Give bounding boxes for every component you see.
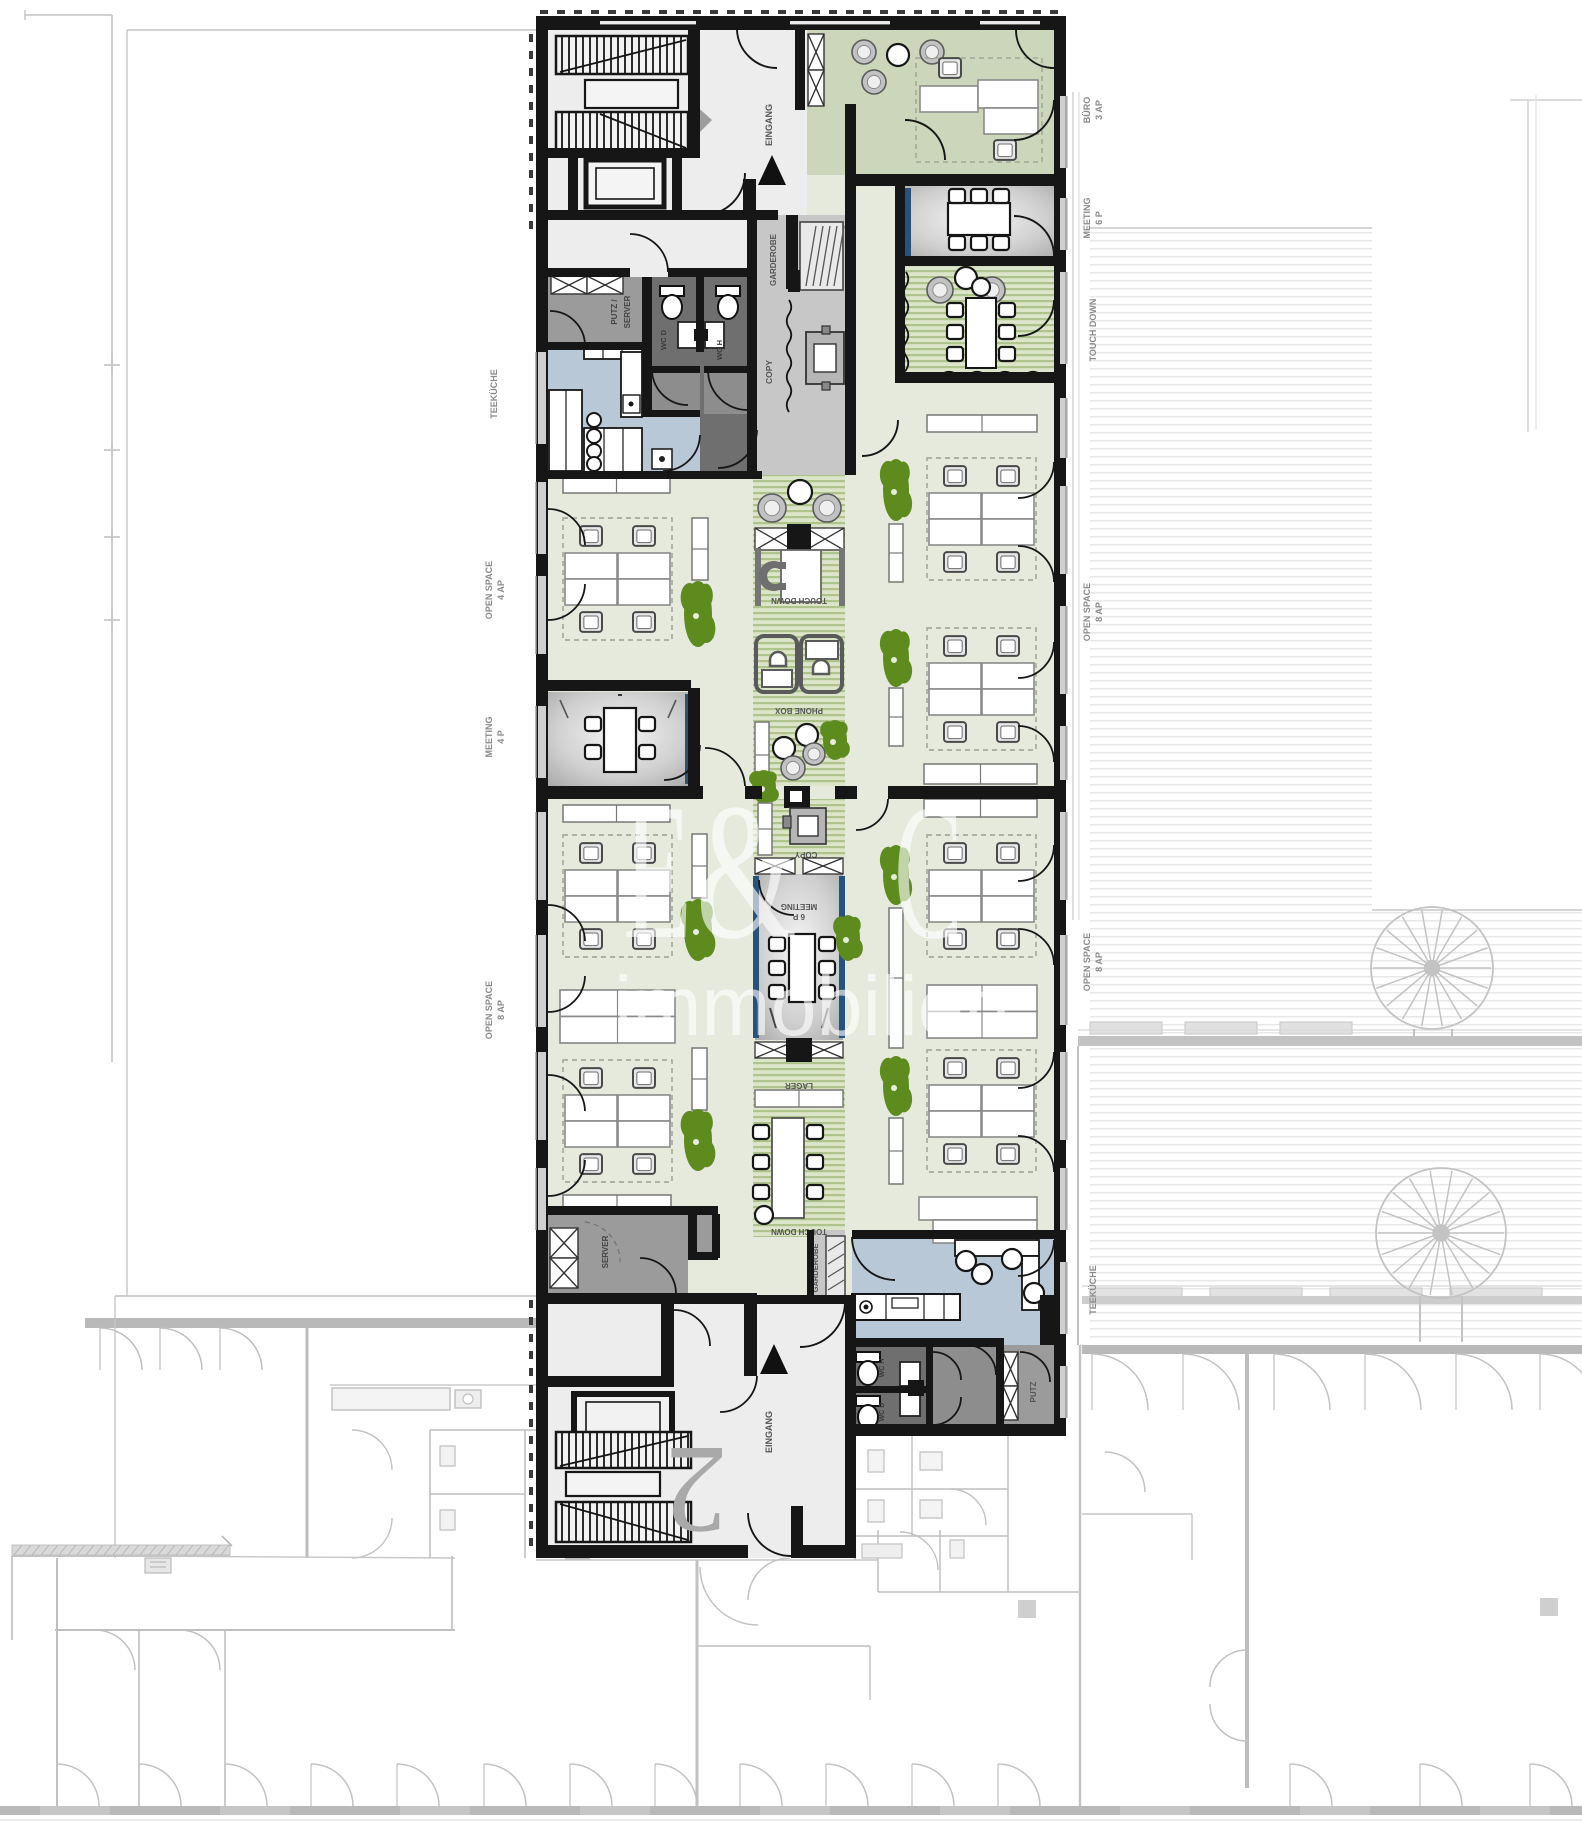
svg-text:TOUCH DOWN: TOUCH DOWN <box>771 1227 827 1236</box>
svg-text:EINGANG: EINGANG <box>764 1411 774 1453</box>
svg-text:OPEN SPACE: OPEN SPACE <box>484 561 494 619</box>
svg-text:8 AP: 8 AP <box>1094 602 1104 622</box>
svg-text:TOUCH DOWN: TOUCH DOWN <box>1088 299 1098 362</box>
svg-text:MEETING: MEETING <box>484 716 494 757</box>
svg-text:&: & <box>696 764 797 980</box>
svg-text:4 P: 4 P <box>496 730 506 744</box>
svg-text:6 P: 6 P <box>1094 211 1104 225</box>
svg-text:4 AP: 4 AP <box>496 580 506 600</box>
svg-text:TEEKÜCHE: TEEKÜCHE <box>1088 1265 1098 1315</box>
svg-text:TOUCH DOWN: TOUCH DOWN <box>771 596 827 605</box>
svg-text:3 AP: 3 AP <box>1094 100 1104 120</box>
svg-text:PUTZ /: PUTZ / <box>610 299 619 325</box>
svg-text:COPY: COPY <box>764 360 774 384</box>
svg-text:C: C <box>894 764 963 980</box>
svg-text:WC H: WC H <box>715 340 724 360</box>
svg-text:WC D: WC D <box>879 1403 886 1422</box>
svg-text:WC D: WC D <box>659 329 668 350</box>
svg-text:MEETING: MEETING <box>1082 197 1092 238</box>
svg-text:8 AP: 8 AP <box>496 1000 506 1020</box>
svg-text:EINGANG: EINGANG <box>764 104 774 146</box>
svg-text:SERVER: SERVER <box>601 1235 610 1268</box>
svg-text:TEEKÜCHE: TEEKÜCHE <box>489 369 499 419</box>
svg-text:OPEN SPACE: OPEN SPACE <box>484 981 494 1039</box>
svg-text:2: 2 <box>665 1420 728 1559</box>
svg-text:PHONE BOX: PHONE BOX <box>774 706 823 715</box>
svg-text:E: E <box>623 764 692 980</box>
svg-text:8 AP: 8 AP <box>1094 952 1104 972</box>
svg-text:SERVER: SERVER <box>623 295 632 328</box>
svg-text:WC H: WC H <box>879 1359 886 1378</box>
svg-text:GARDEROBE: GARDEROBE <box>769 233 778 286</box>
svg-text:PUTZ: PUTZ <box>1029 1381 1038 1402</box>
svg-text:immobilien: immobilien <box>614 959 1010 1053</box>
svg-text:OPEN SPACE: OPEN SPACE <box>1082 583 1092 641</box>
svg-text:OPEN SPACE: OPEN SPACE <box>1082 933 1092 991</box>
svg-text:LAGER: LAGER <box>785 1081 813 1090</box>
svg-text:BÜRO: BÜRO <box>1082 97 1092 124</box>
